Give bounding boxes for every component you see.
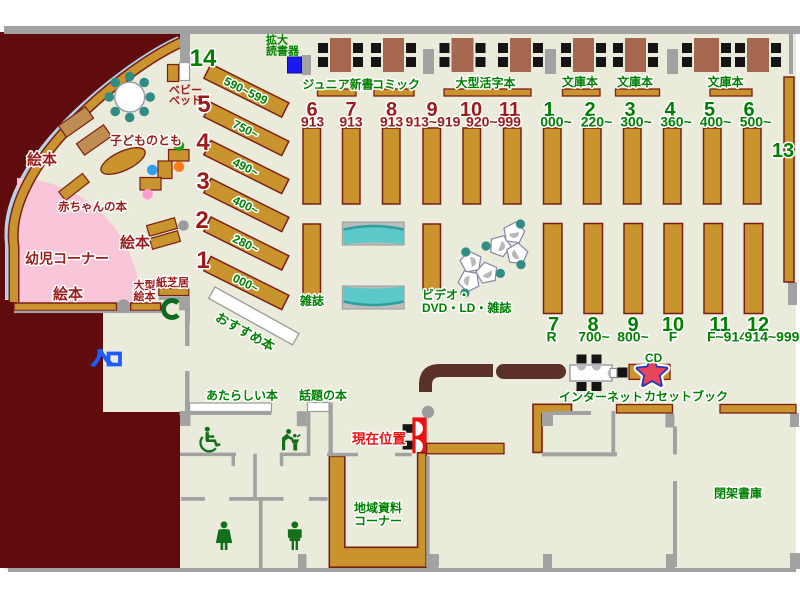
svg-text:914~999: 914~999 bbox=[745, 329, 800, 345]
svg-text:CD: CD bbox=[645, 351, 663, 365]
svg-text:地域資料: 地域資料 bbox=[354, 500, 402, 515]
svg-text:360~: 360~ bbox=[660, 114, 692, 130]
svg-text:913: 913 bbox=[301, 114, 325, 130]
svg-text:ジュニア新書: ジュニア新書 bbox=[302, 77, 373, 92]
svg-text:コーナー: コーナー bbox=[354, 514, 402, 528]
svg-text:絵本: 絵本 bbox=[120, 234, 150, 252]
svg-text:F: F bbox=[669, 329, 678, 345]
svg-text:700~: 700~ bbox=[578, 329, 610, 345]
svg-text:インターネット: インターネット bbox=[559, 390, 643, 404]
svg-text:絵本: 絵本 bbox=[27, 151, 57, 169]
svg-text:子どものとも: 子どものとも bbox=[110, 134, 182, 148]
svg-text:文庫本: 文庫本 bbox=[707, 74, 743, 89]
svg-text:913: 913 bbox=[339, 114, 363, 130]
svg-text:あたらしい本: あたらしい本 bbox=[206, 388, 278, 403]
svg-text:コミック: コミック bbox=[372, 78, 420, 92]
svg-text:920~999: 920~999 bbox=[466, 114, 521, 130]
svg-text:幼児コーナー: 幼児コーナー bbox=[25, 251, 109, 267]
svg-text:カセットブック: カセットブック bbox=[644, 389, 728, 404]
svg-text:913~919: 913~919 bbox=[406, 114, 461, 130]
svg-text:4: 4 bbox=[196, 129, 210, 156]
svg-text:文庫本: 文庫本 bbox=[617, 74, 653, 89]
svg-text:DVD・LD・雑誌: DVD・LD・雑誌 bbox=[422, 300, 511, 315]
svg-text:話題の本: 話題の本 bbox=[299, 388, 347, 403]
svg-text:ベッド: ベッド bbox=[169, 94, 202, 107]
svg-text:絵本: 絵本 bbox=[53, 285, 83, 303]
svg-text:220~: 220~ bbox=[581, 114, 613, 130]
svg-text:1: 1 bbox=[196, 247, 209, 274]
svg-text:文庫本: 文庫本 bbox=[562, 74, 598, 89]
svg-text:F~914: F~914 bbox=[707, 329, 747, 345]
svg-text:大型活字本: 大型活字本 bbox=[455, 75, 515, 90]
svg-text:300~: 300~ bbox=[620, 114, 652, 130]
svg-text:000~: 000~ bbox=[540, 114, 572, 130]
svg-text:800~: 800~ bbox=[617, 329, 649, 345]
svg-text:赤ちゃんの本: 赤ちゃんの本 bbox=[58, 200, 127, 214]
svg-text:R: R bbox=[546, 329, 556, 345]
svg-text:絵本: 絵本 bbox=[134, 289, 156, 303]
svg-text:現在位置: 現在位置 bbox=[352, 431, 406, 447]
svg-text:500~: 500~ bbox=[740, 114, 772, 130]
svg-text:14: 14 bbox=[190, 45, 217, 72]
svg-text:大型: 大型 bbox=[134, 278, 156, 292]
svg-text:400~: 400~ bbox=[700, 114, 732, 130]
svg-text:2: 2 bbox=[195, 207, 208, 234]
svg-text:読書器: 読書器 bbox=[266, 44, 300, 58]
svg-text:3: 3 bbox=[196, 168, 209, 195]
svg-text:913: 913 bbox=[380, 114, 404, 130]
svg-text:雑誌: 雑誌 bbox=[299, 293, 324, 308]
svg-text:閉架書庫: 閉架書庫 bbox=[714, 486, 762, 501]
svg-text:拡大: 拡大 bbox=[266, 33, 288, 47]
svg-text:13: 13 bbox=[772, 140, 794, 162]
svg-text:紙芝居: 紙芝居 bbox=[156, 275, 189, 289]
svg-text:ビデオ・: ビデオ・ bbox=[422, 287, 470, 302]
